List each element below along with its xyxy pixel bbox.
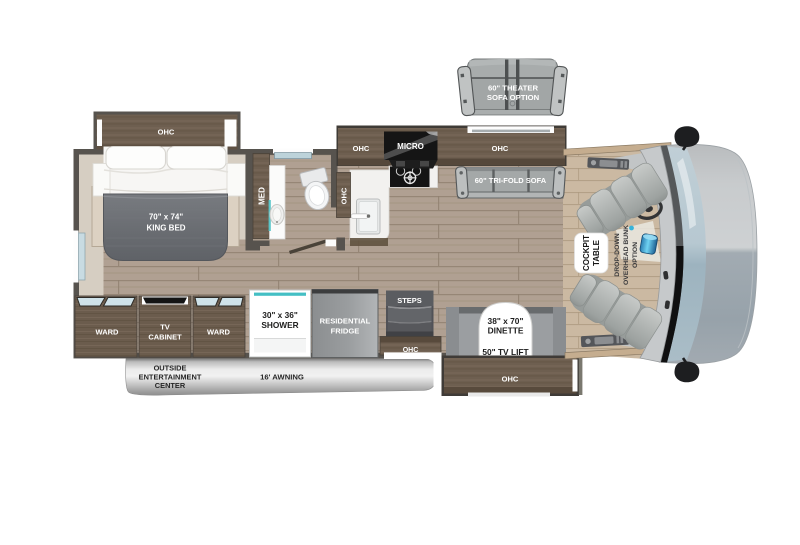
svg-text:38" x 70": 38" x 70": [488, 316, 524, 326]
svg-text:OUTSIDE: OUTSIDE: [154, 364, 187, 373]
svg-text:30" x 36": 30" x 36": [262, 310, 298, 320]
svg-text:16' AWNING: 16' AWNING: [260, 372, 304, 381]
svg-text:ENTERTAINMENT: ENTERTAINMENT: [139, 372, 202, 381]
svg-text:OHC: OHC: [492, 144, 509, 153]
svg-text:MICRO: MICRO: [397, 142, 424, 151]
svg-text:DROP-DOWN: DROP-DOWN: [614, 233, 621, 277]
svg-text:70" x 74": 70" x 74": [149, 213, 183, 222]
svg-text:OPTION: OPTION: [632, 242, 639, 268]
svg-text:COCKPIT: COCKPIT: [582, 235, 591, 271]
svg-text:SOFA OPTION: SOFA OPTION: [487, 93, 540, 102]
svg-text:MED: MED: [258, 187, 267, 205]
svg-text:WARD: WARD: [96, 328, 119, 337]
svg-text:CENTER: CENTER: [155, 381, 186, 390]
svg-text:STEPS: STEPS: [397, 296, 422, 305]
svg-text:OHC: OHC: [158, 128, 175, 137]
svg-text:DINETTE: DINETTE: [488, 326, 524, 336]
svg-text:WARD: WARD: [207, 328, 230, 337]
svg-text:KING BED: KING BED: [146, 224, 185, 233]
svg-text:OHC: OHC: [502, 375, 519, 384]
svg-text:TABLE: TABLE: [592, 239, 601, 266]
svg-text:60" THEATER: 60" THEATER: [488, 84, 539, 93]
svg-text:OVERHEAD BUNK: OVERHEAD BUNK: [623, 225, 630, 285]
svg-text:OHC: OHC: [353, 144, 370, 153]
svg-text:OHC: OHC: [340, 187, 349, 204]
svg-text:FRIDGE: FRIDGE: [331, 327, 360, 336]
svg-text:60" TRI-FOLD SOFA: 60" TRI-FOLD SOFA: [475, 176, 547, 185]
svg-text:CABINET: CABINET: [148, 333, 182, 342]
svg-text:RESIDENTIAL: RESIDENTIAL: [320, 317, 371, 326]
svg-text:SHOWER: SHOWER: [261, 320, 298, 330]
svg-text:TV: TV: [160, 323, 170, 332]
